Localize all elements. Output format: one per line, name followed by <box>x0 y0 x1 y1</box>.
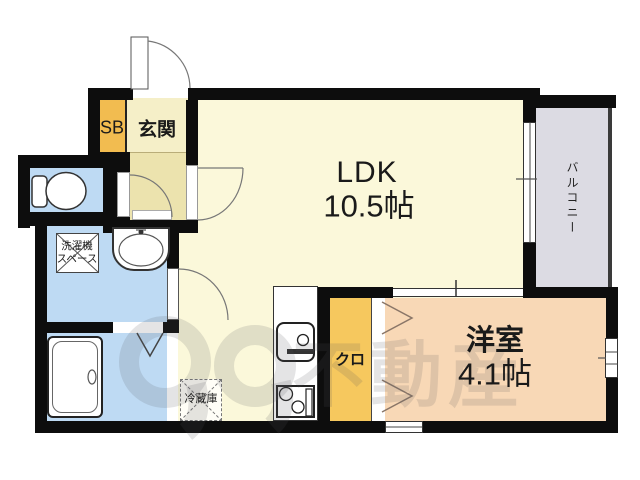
western-room-size-label: 4.1帖 <box>458 349 532 394</box>
wall <box>523 243 536 287</box>
wall <box>35 322 113 333</box>
entrance-label: 玄関 <box>138 115 176 142</box>
balcony-rail <box>608 95 612 287</box>
ldk-size-label: 10.5帖 <box>323 181 414 226</box>
wall <box>188 88 540 100</box>
entrance-door-arc <box>148 41 190 88</box>
side-window <box>605 338 618 378</box>
wall <box>523 287 618 298</box>
wall <box>18 212 103 226</box>
hallway-threshold <box>132 210 172 220</box>
wall <box>186 100 198 165</box>
entrance-door-leaf <box>131 37 148 89</box>
refrigerator-label: 冷蔵庫 <box>185 390 218 406</box>
bathtub-inner <box>52 341 98 413</box>
wall <box>317 287 393 298</box>
washer-space-label: 洗濯機 スペース <box>57 240 98 266</box>
closet-label: クロ <box>335 349 365 370</box>
toilet-room <box>30 168 103 212</box>
toilet-door-opening <box>117 172 130 217</box>
washroom-door-leaf <box>167 268 179 320</box>
wall <box>18 155 115 168</box>
hallway-door-opening <box>186 165 198 220</box>
shoe-box-label: SB <box>100 118 124 139</box>
bottom-window <box>385 421 423 433</box>
washbasin <box>112 227 170 271</box>
wall <box>536 95 616 108</box>
wall <box>523 100 536 122</box>
floor-plan: 不動産 玄関 SB LDK 10.5帖 洋室 4.1帖 クロ 冷蔵庫 洗濯機 ス… <box>0 0 640 480</box>
wall <box>186 220 198 233</box>
balcony-window <box>523 122 536 243</box>
wall <box>103 155 115 226</box>
bathroom-door-opening <box>113 322 163 333</box>
sliding-door <box>393 288 523 297</box>
balcony-label: バルコニー <box>564 161 581 236</box>
wall <box>163 322 179 333</box>
